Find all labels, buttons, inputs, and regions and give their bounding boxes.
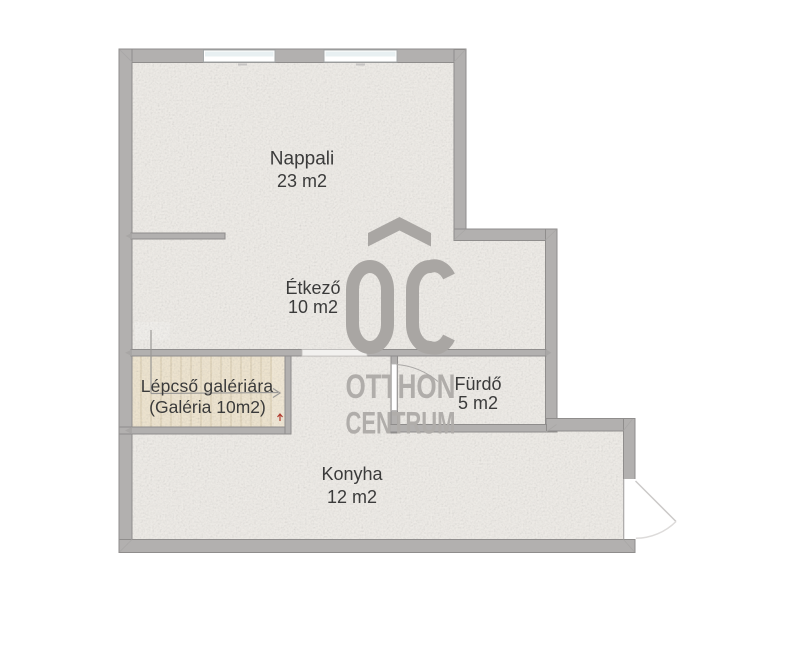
svg-text:OTTHON: OTTHON	[346, 368, 456, 406]
svg-text:Lépcső galériára: Lépcső galériára	[141, 376, 274, 396]
svg-text:CENTRUM: CENTRUM	[346, 405, 456, 441]
svg-text:Nappali: Nappali	[270, 149, 334, 170]
svg-text:Konyha: Konyha	[321, 464, 383, 484]
svg-text:(Galéria 10m2): (Galéria 10m2)	[149, 397, 266, 417]
svg-text:Fürdő: Fürdő	[454, 374, 501, 394]
svg-text:Étkező: Étkező	[285, 278, 340, 298]
svg-text:10 m2: 10 m2	[288, 297, 338, 317]
svg-text:5 m2: 5 m2	[458, 393, 498, 413]
svg-text:12 m2: 12 m2	[327, 487, 377, 507]
svg-text:23 m2: 23 m2	[277, 171, 327, 191]
